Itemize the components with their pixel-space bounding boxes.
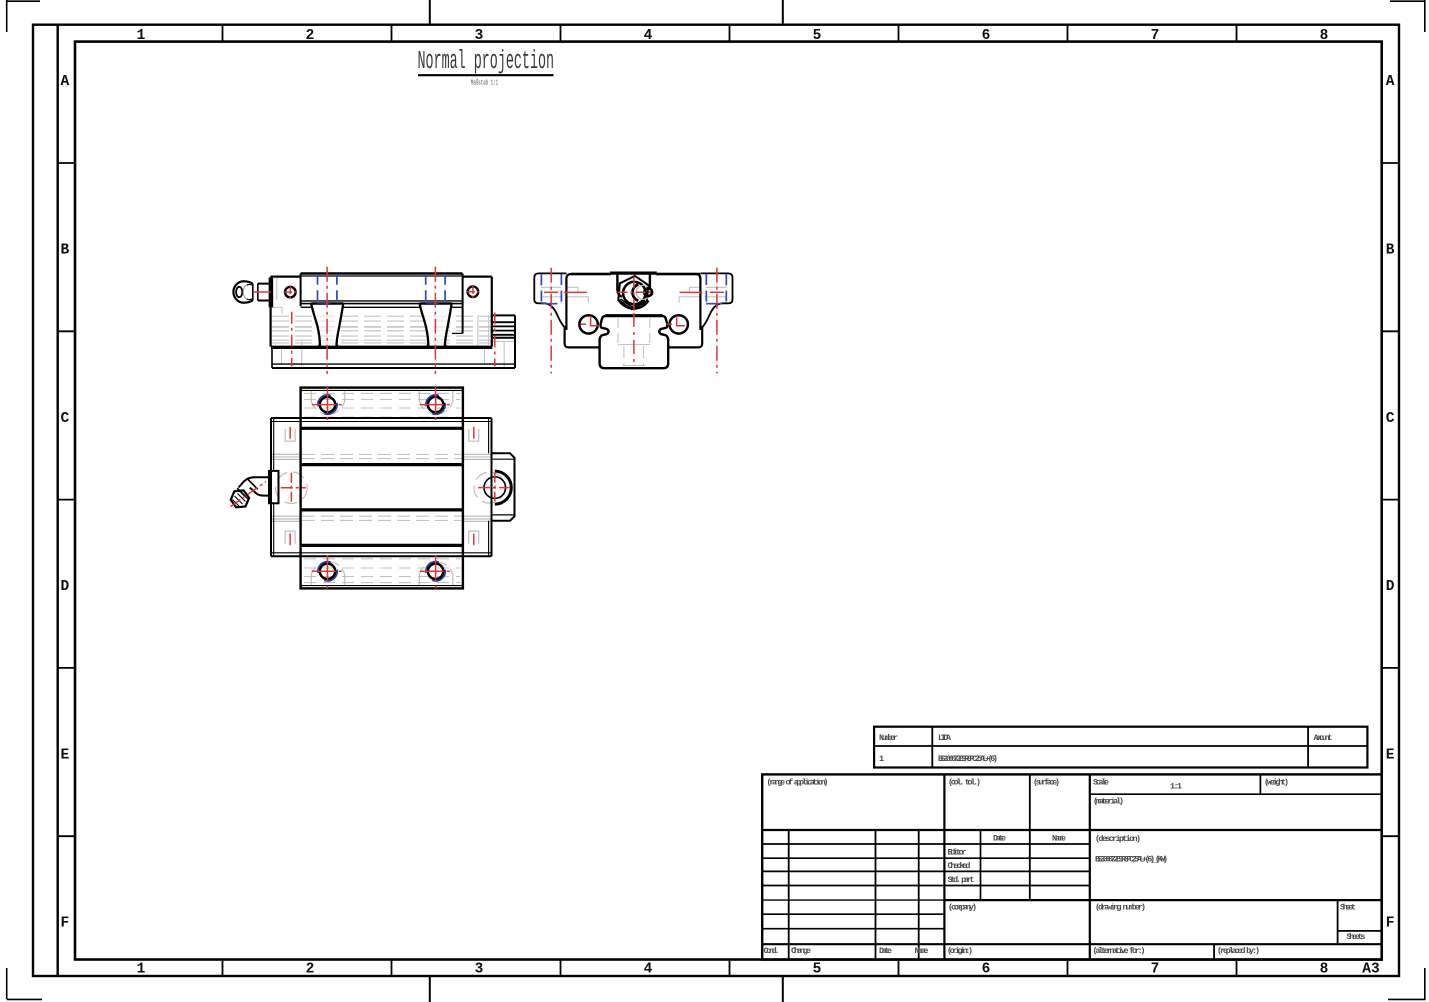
- svg-text:4: 4: [644, 28, 653, 44]
- svg-text:Number: Number: [879, 733, 898, 743]
- svg-text:1: 1: [879, 754, 884, 764]
- svg-text:(weight): (weight): [1264, 778, 1289, 788]
- svg-text:C: C: [1386, 411, 1395, 427]
- svg-text:B: B: [1386, 243, 1395, 259]
- svg-text:D: D: [1386, 579, 1395, 595]
- svg-text:1: 1: [137, 28, 146, 44]
- svg-text:(origin:): (origin:): [947, 946, 973, 956]
- svg-text:A3: A3: [1362, 962, 1379, 978]
- svg-text:(drawing number): (drawing number): [1095, 903, 1146, 913]
- svg-text:Name: Name: [915, 946, 929, 956]
- svg-text:7: 7: [1151, 28, 1160, 44]
- svg-text:(material): (material): [1093, 797, 1124, 807]
- svg-text:Name: Name: [1052, 834, 1066, 844]
- svg-text:(range of application): (range of application): [767, 778, 829, 788]
- svg-text:1:1: 1:1: [1170, 782, 1182, 792]
- svg-text:E: E: [60, 747, 69, 763]
- svg-text:6: 6: [982, 962, 991, 978]
- svg-text:BS300072E9R6PC25AL+(6)_(KW): BS300072E9R6PC25AL+(6)_(KW): [1095, 855, 1168, 865]
- svg-text:Maßstab 1:1: Maßstab 1:1: [471, 78, 498, 87]
- svg-text:8: 8: [1320, 28, 1329, 44]
- svg-text:(alternative for:): (alternative for:): [1093, 946, 1146, 956]
- svg-text:8: 8: [1320, 962, 1329, 978]
- svg-text:Editor: Editor: [948, 848, 967, 858]
- svg-text:7: 7: [1151, 962, 1160, 978]
- svg-text:E: E: [1386, 747, 1395, 763]
- svg-text:Amount: Amount: [1314, 733, 1333, 743]
- svg-text:A: A: [60, 74, 69, 90]
- svg-text:1: 1: [137, 962, 146, 978]
- svg-text:3: 3: [475, 962, 484, 978]
- svg-text:Sheets: Sheets: [1347, 932, 1366, 942]
- svg-text:Normal projection: Normal projection: [418, 48, 555, 77]
- svg-text:Checked: Checked: [948, 861, 971, 871]
- svg-text:D: D: [60, 579, 69, 595]
- svg-text:2: 2: [306, 28, 315, 44]
- svg-text:Date: Date: [993, 834, 1006, 844]
- svg-text:F: F: [60, 916, 69, 932]
- svg-text:C: C: [60, 411, 69, 427]
- svg-text:A: A: [1386, 74, 1395, 90]
- svg-text:B: B: [60, 243, 69, 259]
- svg-text:(description): (description): [1095, 834, 1141, 844]
- svg-text:2: 2: [306, 962, 315, 978]
- svg-text:Scale: Scale: [1093, 778, 1109, 788]
- svg-text:Date: Date: [879, 946, 892, 956]
- svg-text:3: 3: [475, 28, 484, 44]
- svg-text:4: 4: [644, 962, 653, 978]
- svg-text:Change: Change: [791, 946, 811, 956]
- svg-text:Sheet: Sheet: [1340, 903, 1356, 913]
- svg-text:(surface): (surface): [1033, 778, 1060, 788]
- svg-text:Cond.: Cond.: [764, 946, 780, 956]
- svg-text:Std. part: Std. part: [948, 875, 975, 885]
- svg-text:5: 5: [813, 28, 822, 44]
- svg-text:(company): (company): [948, 903, 977, 913]
- svg-text:LIDA: LIDA: [938, 733, 952, 743]
- svg-text:(replaced by:): (replaced by:): [1217, 946, 1260, 956]
- svg-text:BS300072E9R6PC25AL+(6): BS300072E9R6PC25AL+(6): [938, 754, 998, 764]
- svg-text:6: 6: [982, 28, 991, 44]
- svg-text:F: F: [1386, 916, 1395, 932]
- svg-text:5: 5: [813, 962, 822, 978]
- svg-text:(col. tol.): (col. tol.): [948, 778, 981, 788]
